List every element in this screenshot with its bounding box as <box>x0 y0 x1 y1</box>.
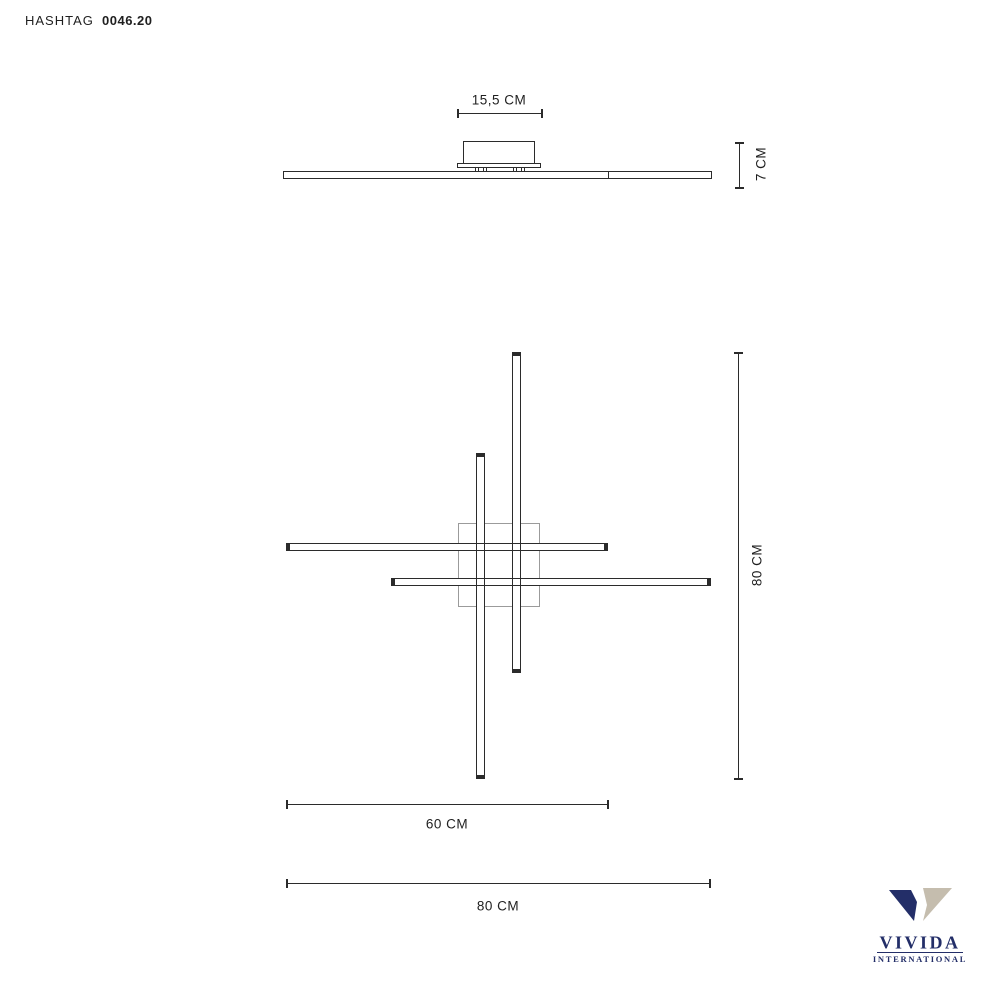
light-bar-horizontal-upper <box>286 543 608 551</box>
dim-label-vertical-span: 80 CM <box>750 544 765 586</box>
dimension-tick <box>734 352 743 354</box>
canopy-square <box>458 523 540 607</box>
dimension-line-canopy-width <box>457 113 542 114</box>
logo-divider <box>877 952 963 953</box>
bar-end-cap <box>513 353 520 356</box>
dimension-line-vertical-span <box>738 352 739 779</box>
dimension-tick <box>607 800 609 809</box>
light-bar-horizontal-lower <box>391 578 711 586</box>
dimension-tick <box>709 879 711 888</box>
bar-end-cap <box>604 544 607 550</box>
bar-end-cap <box>477 454 484 457</box>
product-code: 0046.20 <box>102 13 153 28</box>
product-name: HASHTAG <box>25 13 94 28</box>
canopy-box-side <box>463 141 535 164</box>
light-bar-side <box>283 171 712 179</box>
dimension-tick <box>541 109 543 118</box>
dimension-tick <box>286 879 288 888</box>
light-bar-seam <box>608 172 609 178</box>
bar-end-cap <box>392 579 395 585</box>
brand-subtitle: INTERNATIONAL <box>873 954 967 964</box>
light-bar-vertical-left <box>476 453 485 779</box>
bar-end-cap <box>707 579 710 585</box>
logo-mark-left-chevron <box>889 890 917 921</box>
dimension-tick <box>735 142 744 144</box>
bar-end-cap <box>513 669 520 672</box>
dimension-tick <box>734 778 743 780</box>
spec-sheet: HASHTAG 0046.20 15,5 CM 7 CM <box>0 0 1000 1000</box>
dimension-tick <box>457 109 459 118</box>
dimension-tick <box>286 800 288 809</box>
bar-end-cap <box>477 775 484 778</box>
brand-name: VIVIDA <box>879 933 960 954</box>
dimension-line-height <box>739 142 740 188</box>
mounting-plate-side <box>457 163 541 168</box>
logo-mark-right-chevron <box>923 888 952 921</box>
light-bar-vertical-right <box>512 352 521 673</box>
dim-label-height: 7 CM <box>754 147 769 181</box>
dim-label-full-width: 80 CM <box>477 899 519 914</box>
dimension-line-inner-width <box>286 804 608 805</box>
dimension-line-full-width <box>286 883 710 884</box>
bar-end-cap <box>287 544 290 550</box>
dim-label-canopy-width: 15,5 CM <box>472 93 527 108</box>
dimension-tick <box>735 187 744 189</box>
dim-label-inner-width: 60 CM <box>426 817 468 832</box>
logo-mark <box>875 884 965 928</box>
